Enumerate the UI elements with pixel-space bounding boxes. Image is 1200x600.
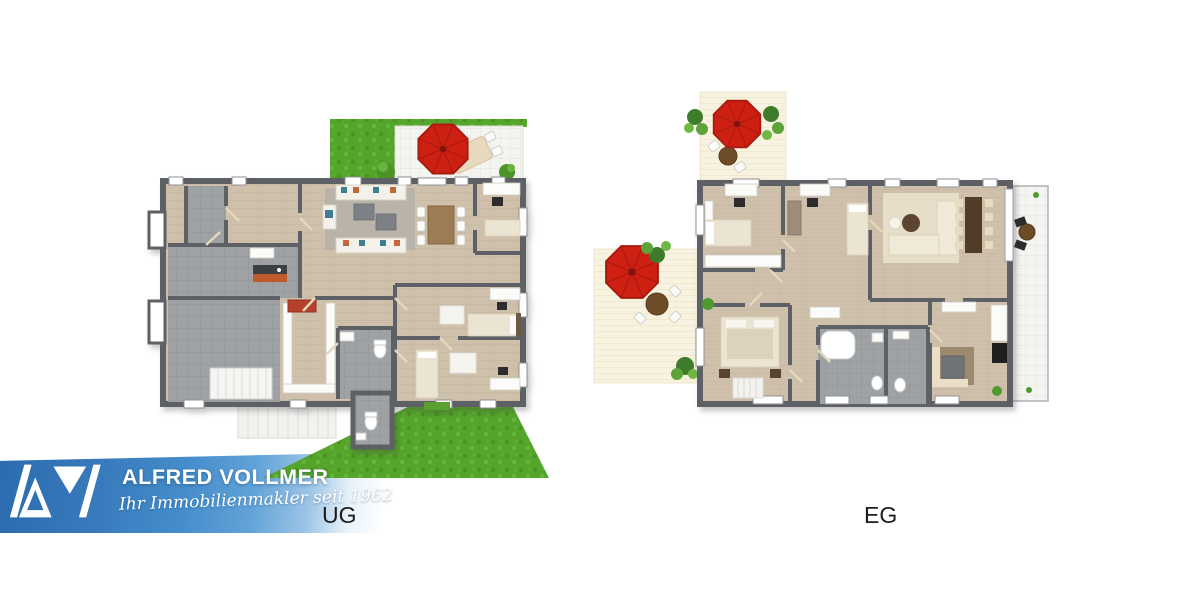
eg-red-parasol-top-icon <box>714 101 761 148</box>
ug-exterior-stairs <box>238 404 336 438</box>
ug-red-parasol-icon <box>418 124 467 173</box>
ug-floorplan <box>140 88 560 483</box>
company-name: ALFRED VOLLMER <box>122 465 329 490</box>
floor-label-eg: EG <box>864 502 897 529</box>
ug-building <box>149 177 527 447</box>
eg-building <box>696 179 1013 404</box>
floor-label-ug: UG <box>322 502 357 529</box>
ug-entry-room <box>186 186 226 245</box>
eg-balcony <box>1010 186 1048 401</box>
ug-doormat <box>424 402 450 410</box>
ug-interior-stairs <box>210 368 272 399</box>
eg-floorplan <box>585 85 1060 430</box>
logo-mark-av-icon <box>8 462 108 520</box>
floorplan-canvas: ALFRED VOLLMER Ihr Immobilienmakler seit… <box>0 0 1200 600</box>
